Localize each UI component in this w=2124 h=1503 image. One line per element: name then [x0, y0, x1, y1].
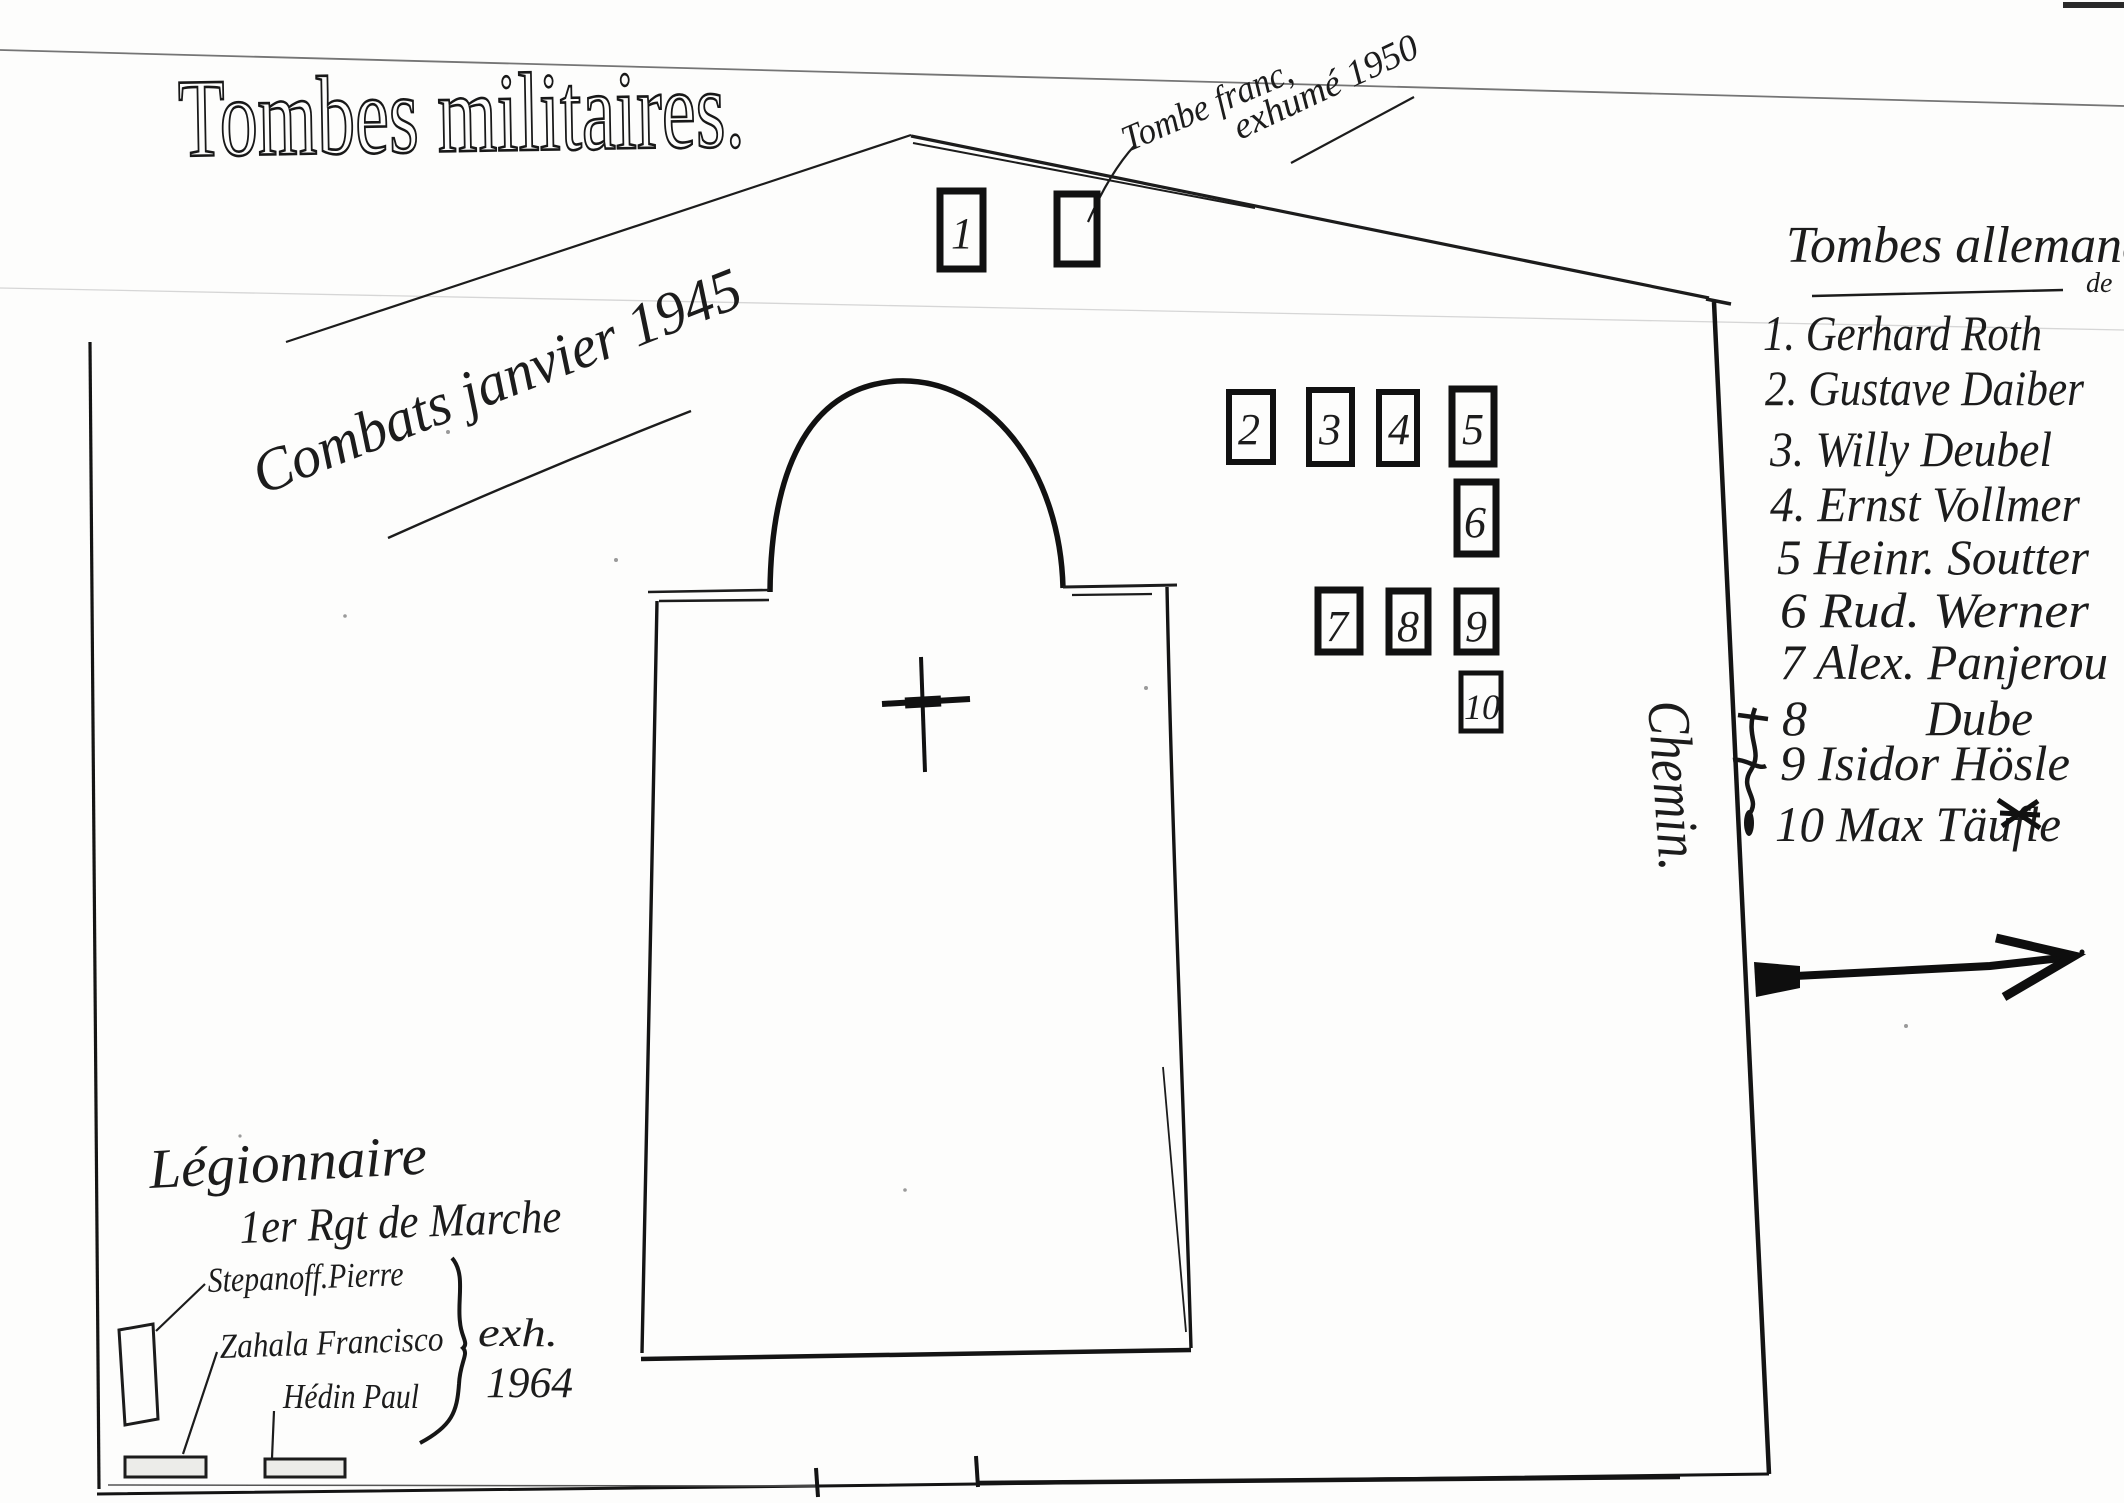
svg-text:10 Max Täufle: 10 Max Täufle [1775, 796, 2061, 852]
svg-text:3: 3 [1318, 405, 1341, 454]
svg-text:6 Rud. Werner: 6 Rud. Werner [1780, 582, 2090, 638]
svg-text:10: 10 [1464, 687, 1500, 727]
svg-text:4: 4 [1388, 405, 1410, 454]
svg-text:8: 8 [1397, 602, 1419, 651]
svg-text:3. Willy Deubel: 3. Willy Deubel [1769, 421, 2052, 477]
svg-text:5 Heinr. Soutter: 5 Heinr. Soutter [1777, 529, 2090, 585]
svg-text:de: de [2086, 268, 2112, 299]
svg-text:2: 2 [1238, 405, 1260, 454]
svg-text:9 Isidor Hösle: 9 Isidor Hösle [1780, 735, 2070, 791]
svg-text:1964: 1964 [486, 1360, 573, 1407]
svg-text:Tombes militaires.: Tombes militaires. [177, 47, 745, 181]
svg-text:Stepanoff.Pierre: Stepanoff.Pierre [207, 1254, 404, 1300]
svg-text:2. Gustave Daiber: 2. Gustave Daiber [1765, 360, 2084, 416]
svg-text:Zahala Francisco: Zahala Francisco [219, 1319, 444, 1366]
svg-text:1: 1 [951, 209, 973, 258]
svg-text:Tombes allemandes: Tombes allemandes [1786, 217, 2124, 274]
svg-text:4. Ernst Vollmer: 4. Ernst Vollmer [1770, 476, 2081, 532]
svg-text:7: 7 [1326, 602, 1350, 651]
svg-text:9: 9 [1465, 602, 1487, 651]
svg-text:exh.: exh. [478, 1310, 558, 1355]
svg-text:6: 6 [1464, 498, 1486, 547]
svg-text:Hédin Paul: Hédin Paul [282, 1377, 419, 1416]
svg-text:Chemin.: Chemin. [1635, 698, 1713, 872]
svg-text:1. Gerhard Roth: 1. Gerhard Roth [1763, 305, 2042, 361]
svg-text:7 Alex. Panjerou: 7 Alex. Panjerou [1780, 634, 2108, 690]
svg-text:5: 5 [1462, 405, 1484, 454]
